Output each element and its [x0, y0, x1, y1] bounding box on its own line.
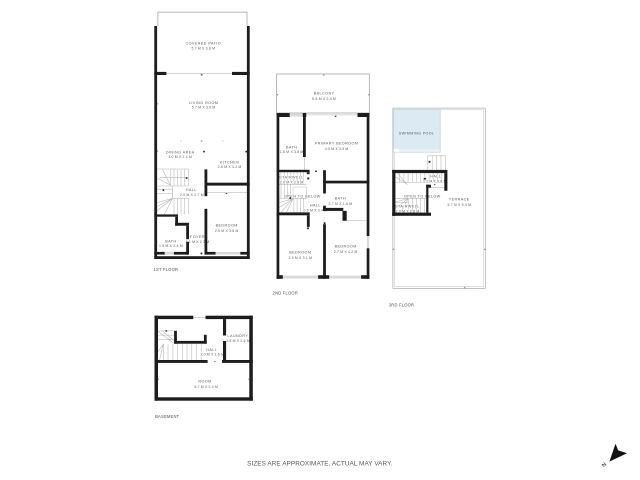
svg-text:HALL: HALL — [430, 175, 441, 179]
svg-text:2.6 M X 3.2 M: 2.6 M X 3.2 M — [218, 165, 242, 169]
svg-text:ROOM: ROOM — [198, 380, 211, 384]
svg-text:BEDROOM: BEDROOM — [335, 244, 357, 248]
svg-text:HALL: HALL — [186, 188, 197, 192]
svg-text:COVERED PATIO: COVERED PATIO — [185, 42, 221, 46]
svg-text:PRIMARY BEDROOM: PRIMARY BEDROOM — [315, 142, 359, 146]
svg-text:STAIRWELL: STAIRWELL — [395, 204, 420, 208]
svg-text:BALCONY: BALCONY — [314, 92, 335, 96]
svg-text:1.2 M X 0.8 M: 1.2 M X 0.8 M — [423, 180, 447, 184]
svg-text:2ND FLOOR: 2ND FLOOR — [273, 290, 298, 295]
svg-text:5.8 M X 2.4 M: 5.8 M X 2.4 M — [312, 97, 336, 101]
svg-text:2.0 M X 2.6 M: 2.0 M X 2.6 M — [280, 181, 304, 185]
svg-text:STAIRWELL: STAIRWELL — [279, 176, 304, 180]
svg-text:SWIMMING POOL: SWIMMING POOL — [399, 132, 435, 136]
svg-text:1ST FLOOR: 1ST FLOOR — [154, 267, 179, 272]
svg-text:2.0 M X 1.6 M: 2.0 M X 1.6 M — [200, 352, 224, 356]
svg-text:DINING AREA: DINING AREA — [166, 150, 195, 154]
svg-text:KITCHEN: KITCHEN — [220, 161, 239, 165]
svg-text:LAUNDRY: LAUNDRY — [228, 334, 249, 338]
svg-text:HALL: HALL — [206, 348, 217, 352]
svg-text:2.7 M X 1.6 M: 2.7 M X 1.6 M — [329, 202, 353, 206]
svg-text:4.0 M X 3.5 M: 4.0 M X 3.5 M — [325, 147, 349, 151]
svg-text:5.7 M X 9.3 M: 5.7 M X 9.3 M — [447, 203, 471, 207]
svg-text:2.7 M X 4.2 M: 2.7 M X 4.2 M — [334, 250, 358, 254]
svg-text:FOYER: FOYER — [190, 235, 205, 239]
svg-text:N: N — [601, 462, 608, 469]
svg-text:5.7 M X 2.4 M: 5.7 M X 2.4 M — [194, 385, 218, 389]
svg-text:BEDROOM: BEDROOM — [216, 224, 238, 228]
svg-text:OPEN TO BELOW: OPEN TO BELOW — [404, 195, 441, 199]
svg-text:5.7 M X 3.6 M: 5.7 M X 3.6 M — [192, 106, 216, 110]
svg-text:1.6 M X 3.5 M: 1.6 M X 3.5 M — [280, 150, 304, 154]
svg-text:BATH: BATH — [335, 197, 346, 201]
svg-text:5.7 M X 3.8 M: 5.7 M X 3.8 M — [191, 47, 215, 51]
svg-text:2.5 M X 3.1 M: 2.5 M X 3.1 M — [288, 256, 312, 260]
svg-text:2.0 M X 2.7 M: 2.0 M X 2.7 M — [180, 193, 204, 197]
svg-text:BEDROOM: BEDROOM — [289, 250, 311, 254]
svg-text:2.5 M X 3.6 M: 2.5 M X 3.6 M — [215, 229, 239, 233]
svg-text:BATH: BATH — [165, 239, 176, 243]
svg-text:HALL: HALL — [310, 203, 321, 207]
svg-text:1.9 M X 2.4 M: 1.9 M X 2.4 M — [159, 244, 183, 248]
svg-text:BASEMENT: BASEMENT — [155, 414, 180, 419]
svg-text:LIVING ROOM: LIVING ROOM — [189, 101, 219, 105]
svg-text:3RD FLOOR: 3RD FLOOR — [389, 302, 414, 307]
svg-text:SIZES ARE APPROXIMATE, ACTUAL: SIZES ARE APPROXIMATE, ACTUAL MAY VARY. — [247, 461, 392, 468]
svg-text:1.6 M X 2.6 M: 1.6 M X 2.6 M — [226, 339, 250, 343]
svg-text:TERRACE: TERRACE — [449, 198, 470, 202]
svg-text:3.0 M X 2.4 M: 3.0 M X 2.4 M — [168, 155, 192, 159]
